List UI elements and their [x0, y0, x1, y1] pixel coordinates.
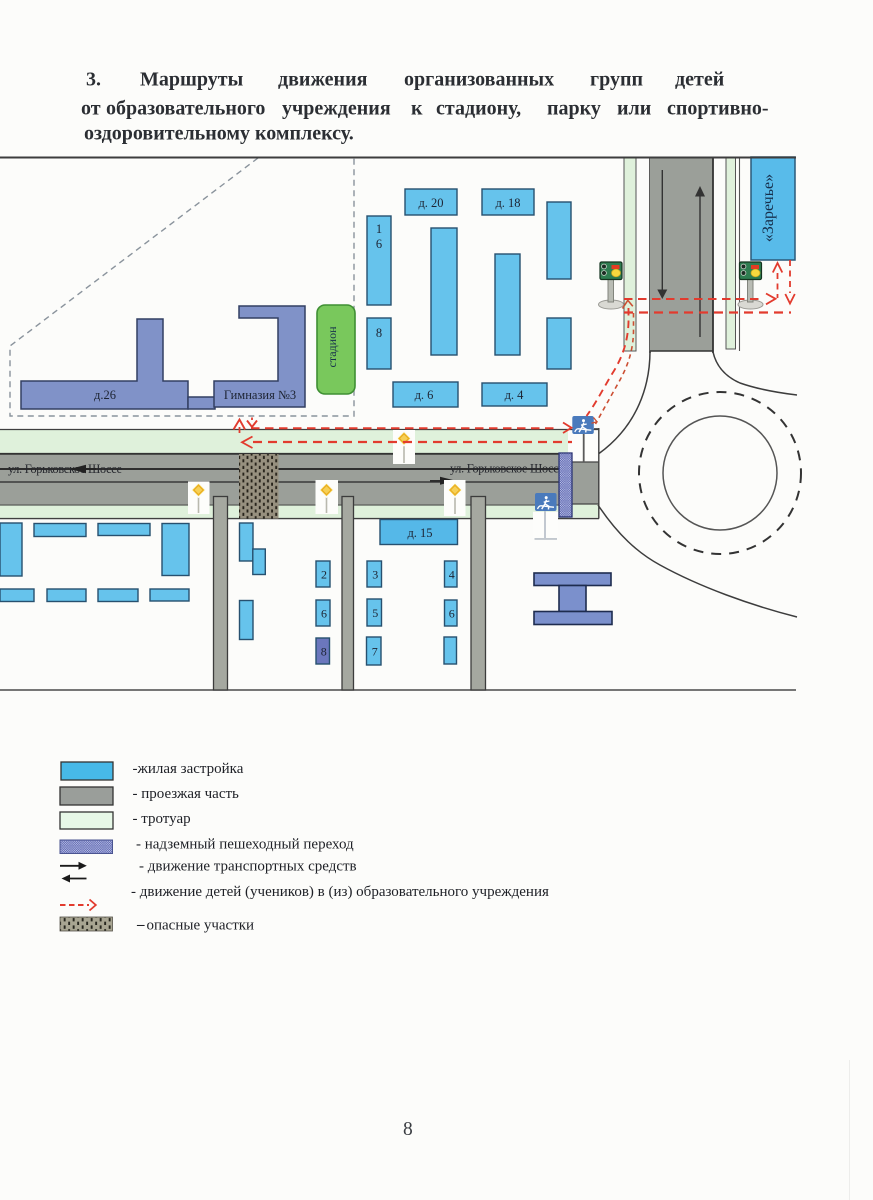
- svg-text:8: 8: [376, 326, 382, 340]
- svg-text:3.: 3.: [86, 69, 101, 91]
- svg-text:спортивно-: спортивно-: [667, 98, 769, 120]
- svg-text:образовательного: образовательного: [106, 98, 265, 120]
- svg-text:д. 6: д. 6: [415, 388, 434, 402]
- svg-text:7: 7: [372, 645, 378, 659]
- svg-text:Маршруты: Маршруты: [140, 69, 244, 91]
- svg-text:парку: парку: [547, 98, 601, 120]
- svg-text:«Заречье»: «Заречье»: [760, 174, 777, 242]
- svg-text:организованных: организованных: [404, 69, 554, 91]
- svg-text:д.26: д.26: [94, 388, 116, 402]
- svg-text:Гимназия №3: Гимназия №3: [224, 388, 296, 402]
- svg-text:1: 1: [376, 222, 382, 236]
- svg-text:5: 5: [372, 606, 378, 620]
- svg-text:ул. Горьковское Шоссе: ул. Горьковское Шоссе: [8, 462, 122, 476]
- svg-text:д. 4: д. 4: [505, 388, 525, 402]
- svg-text:групп: групп: [590, 69, 643, 91]
- svg-text:- надземный пешеходный переход: - надземный пешеходный переход: [136, 837, 354, 853]
- svg-text:- проезжая часть: - проезжая часть: [133, 786, 240, 802]
- svg-text:3: 3: [372, 568, 378, 582]
- svg-text:6: 6: [321, 607, 327, 621]
- svg-text:4: 4: [449, 568, 455, 582]
- svg-text:или: или: [617, 98, 651, 120]
- svg-text:–: –: [136, 917, 145, 933]
- svg-text:стадиону,: стадиону,: [436, 98, 521, 120]
- svg-text:опасные участки: опасные участки: [147, 918, 255, 934]
- svg-text:д. 15: д. 15: [407, 526, 432, 540]
- svg-text:оздоровительному комплексу.: оздоровительному комплексу.: [84, 123, 354, 145]
- svg-text:движения: движения: [278, 69, 368, 91]
- svg-text:от: от: [81, 98, 101, 120]
- svg-text:- тротуар: - тротуар: [133, 811, 191, 827]
- svg-text:8: 8: [403, 1119, 413, 1140]
- svg-text:учреждения: учреждения: [282, 98, 391, 120]
- svg-text:к: к: [411, 98, 423, 120]
- svg-text:д. 18: д. 18: [495, 196, 520, 210]
- svg-text:6: 6: [376, 237, 382, 251]
- svg-text:- движение транспортных средст: - движение транспортных средств: [139, 859, 357, 875]
- svg-text:- движение детей (учеников) в: - движение детей (учеников) в (из) образ…: [131, 884, 549, 900]
- svg-text:8: 8: [321, 645, 327, 659]
- svg-text:стадион: стадион: [325, 326, 339, 368]
- svg-text:-жилая застройка: -жилая застройка: [133, 761, 244, 777]
- svg-text:ул. Горьковское Шоссе: ул. Горьковское Шоссе: [450, 462, 564, 476]
- svg-text:детей: детей: [675, 69, 724, 91]
- svg-text:д. 20: д. 20: [418, 196, 443, 210]
- svg-text:6: 6: [449, 607, 455, 621]
- svg-text:2: 2: [321, 568, 327, 582]
